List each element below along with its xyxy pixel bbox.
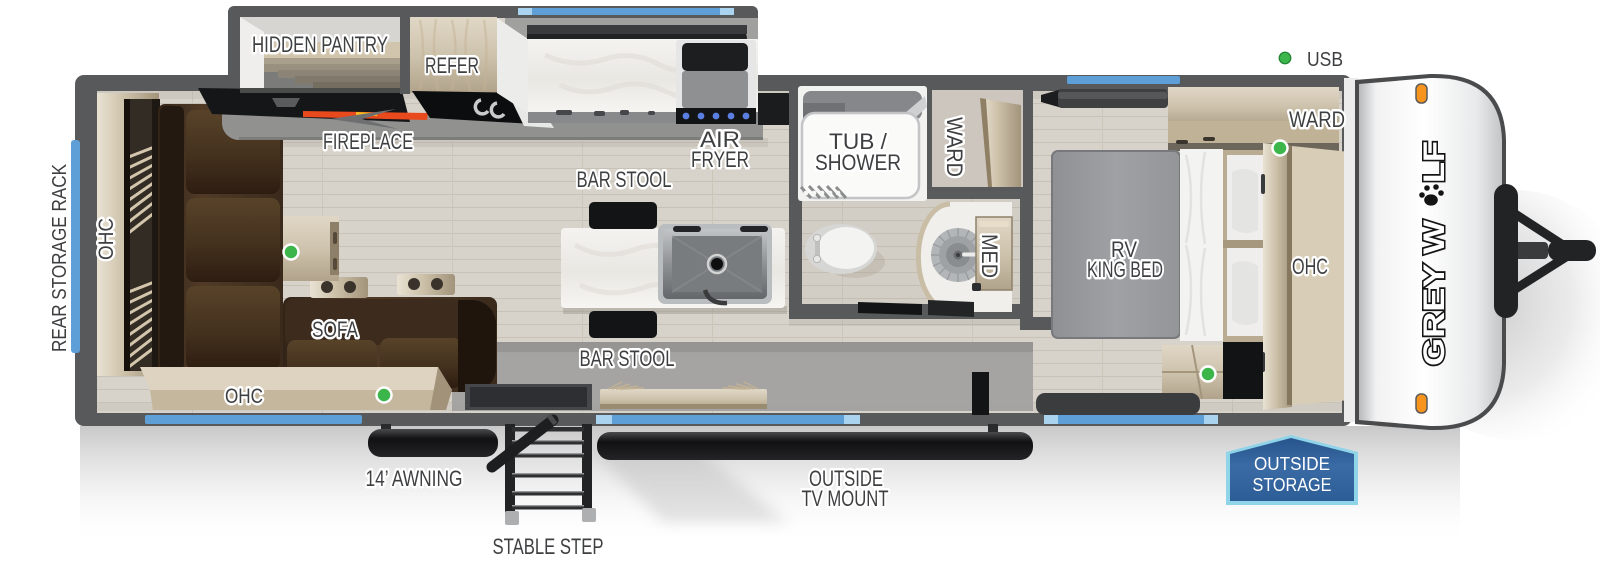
svg-text:GREY W: GREY W (1418, 219, 1451, 366)
svg-text:OUTSIDE: OUTSIDE (1254, 454, 1330, 474)
svg-text:WARD: WARD (1289, 107, 1345, 132)
svg-text:HIDDEN PANTRY: HIDDEN PANTRY (252, 32, 388, 57)
svg-text:KING BED: KING BED (1087, 257, 1163, 282)
svg-text:OHC: OHC (225, 385, 263, 408)
svg-text:SOFA: SOFA (312, 317, 358, 342)
svg-text:14’ AWNING: 14’ AWNING (366, 466, 463, 491)
svg-text:REAR STORAGE RACK: REAR STORAGE RACK (49, 163, 71, 352)
svg-text:MED: MED (977, 234, 1002, 278)
svg-text:TV MOUNT: TV MOUNT (802, 486, 889, 511)
svg-text:STABLE STEP: STABLE STEP (493, 534, 604, 559)
svg-text:OHC: OHC (95, 218, 118, 260)
svg-text:WARD: WARD (942, 117, 967, 177)
svg-text:OHC: OHC (1292, 254, 1328, 279)
svg-text:STORAGE: STORAGE (1253, 475, 1332, 495)
svg-text:BAR STOOL: BAR STOOL (577, 167, 672, 192)
svg-text:LF: LF (1418, 141, 1451, 183)
svg-text:BAR STOOL: BAR STOOL (580, 346, 675, 371)
svg-text:REFER: REFER (425, 53, 479, 78)
svg-text:USB: USB (1307, 49, 1343, 71)
svg-text:FIREPLACE: FIREPLACE (323, 129, 413, 154)
svg-text:SHOWER: SHOWER (815, 150, 901, 175)
svg-text:FRYER: FRYER (691, 147, 749, 172)
